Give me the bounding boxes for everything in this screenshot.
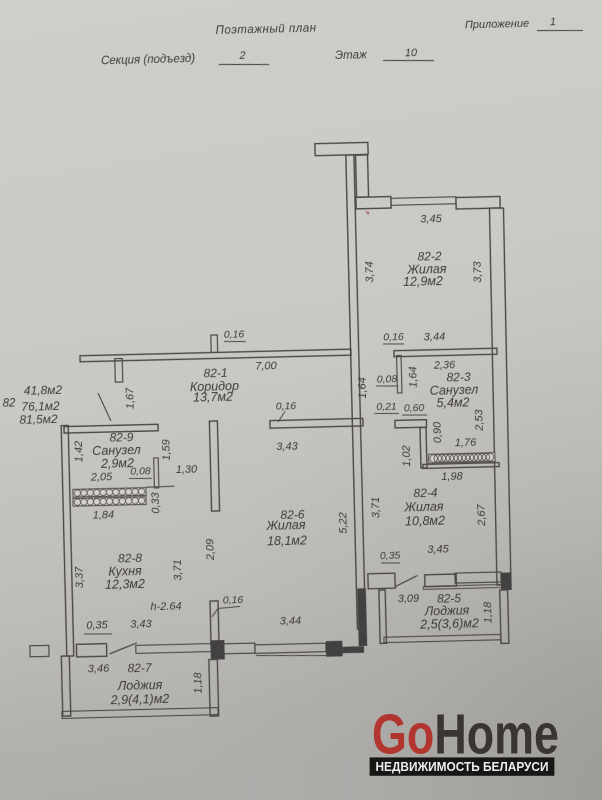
svg-text:3,45: 3,45 [420,213,443,226]
svg-text:1,59: 1,59 [161,439,174,461]
svg-text:3,74: 3,74 [364,261,377,283]
svg-text:h-2.64: h-2.64 [150,600,181,613]
svg-text:Секция (подъезд): Секция (подъезд) [101,53,196,67]
svg-text:Жилая: Жилая [403,499,444,514]
svg-text:2,9(4,1)м2: 2,9(4,1)м2 [109,692,169,707]
svg-text:82-7: 82-7 [127,661,153,676]
svg-text:18,1м2: 18,1м2 [267,533,307,548]
svg-text:Этаж: Этаж [335,49,368,62]
svg-text:Поэтажный план: Поэтажный план [215,22,316,36]
svg-text:13,7м2: 13,7м2 [193,390,233,405]
svg-text:3,71: 3,71 [370,497,383,519]
svg-text:0,16: 0,16 [224,329,245,341]
svg-text:3,46: 3,46 [88,663,111,676]
svg-text:1: 1 [550,16,556,28]
svg-text:1,18: 1,18 [192,671,205,694]
svg-text:GoHome: GoHome [372,703,559,767]
svg-text:1,02: 1,02 [401,445,414,467]
svg-text:0,08: 0,08 [377,373,398,385]
svg-text:0,33: 0,33 [150,491,163,514]
svg-text:82-1: 82-1 [203,366,227,381]
svg-text:12,9м2: 12,9м2 [403,274,443,289]
svg-text:3,44: 3,44 [424,331,446,344]
svg-text:Лоджия: Лоджия [117,678,163,693]
svg-text:3,09: 3,09 [398,593,420,606]
svg-text:10: 10 [405,47,418,59]
svg-text:3,44: 3,44 [280,615,302,628]
svg-text:0,16: 0,16 [223,594,244,606]
svg-text:0,35: 0,35 [380,550,401,562]
svg-text:2,36: 2,36 [433,359,457,372]
svg-text:2,09: 2,09 [204,539,217,562]
svg-text:1,76: 1,76 [455,437,478,450]
svg-text:3,45: 3,45 [427,544,450,557]
svg-text:81,5м2: 81,5м2 [19,412,58,427]
svg-text:0,60: 0,60 [404,402,425,414]
svg-text:10,8м2: 10,8м2 [405,513,445,528]
svg-text:1,18: 1,18 [482,601,495,624]
svg-text:3,43: 3,43 [276,441,299,454]
svg-text:0,35: 0,35 [86,619,109,632]
svg-text:82: 82 [2,397,16,409]
svg-text:1,84: 1,84 [93,509,115,522]
svg-text:0,16: 0,16 [383,331,404,343]
svg-text:Жилая: Жилая [265,518,306,533]
svg-text:3,37: 3,37 [74,566,87,589]
svg-text:0,08: 0,08 [130,465,151,477]
svg-text:1,42: 1,42 [73,441,86,463]
svg-text:5,4м2: 5,4м2 [436,395,469,410]
svg-text:НЕДВИЖИМОСТЬ БЕЛАРУСИ: НЕДВИЖИМОСТЬ БЕЛАРУСИ [376,760,549,774]
svg-text:0,90: 0,90 [432,421,445,444]
svg-text:3,71: 3,71 [172,559,185,581]
svg-text:3,73: 3,73 [472,260,485,283]
svg-text:1,64: 1,64 [357,377,370,399]
svg-text:7,00: 7,00 [255,360,278,373]
svg-text:2,53: 2,53 [473,408,486,432]
svg-text:41,8м2: 41,8м2 [24,383,63,398]
svg-text:1,64: 1,64 [407,366,420,388]
svg-text:0,16: 0,16 [276,400,297,412]
svg-text:1,30: 1,30 [176,464,199,477]
svg-text:1,67: 1,67 [124,387,137,410]
svg-text:2,67: 2,67 [476,503,489,527]
svg-text:3,43: 3,43 [130,618,153,631]
svg-text:2,5(3,6)м2: 2,5(3,6)м2 [419,616,479,631]
svg-text:5,22: 5,22 [337,512,350,534]
svg-text:2,05: 2,05 [90,471,114,484]
svg-text:1,98: 1,98 [441,471,464,484]
svg-text:2,9м2: 2,9м2 [100,456,134,471]
svg-text:12,3м2: 12,3м2 [105,577,145,592]
svg-text:0,21: 0,21 [376,401,397,413]
svg-text:82-4: 82-4 [413,486,438,501]
svg-text:2: 2 [238,50,245,62]
svg-text:Приложение: Приложение [465,18,530,32]
